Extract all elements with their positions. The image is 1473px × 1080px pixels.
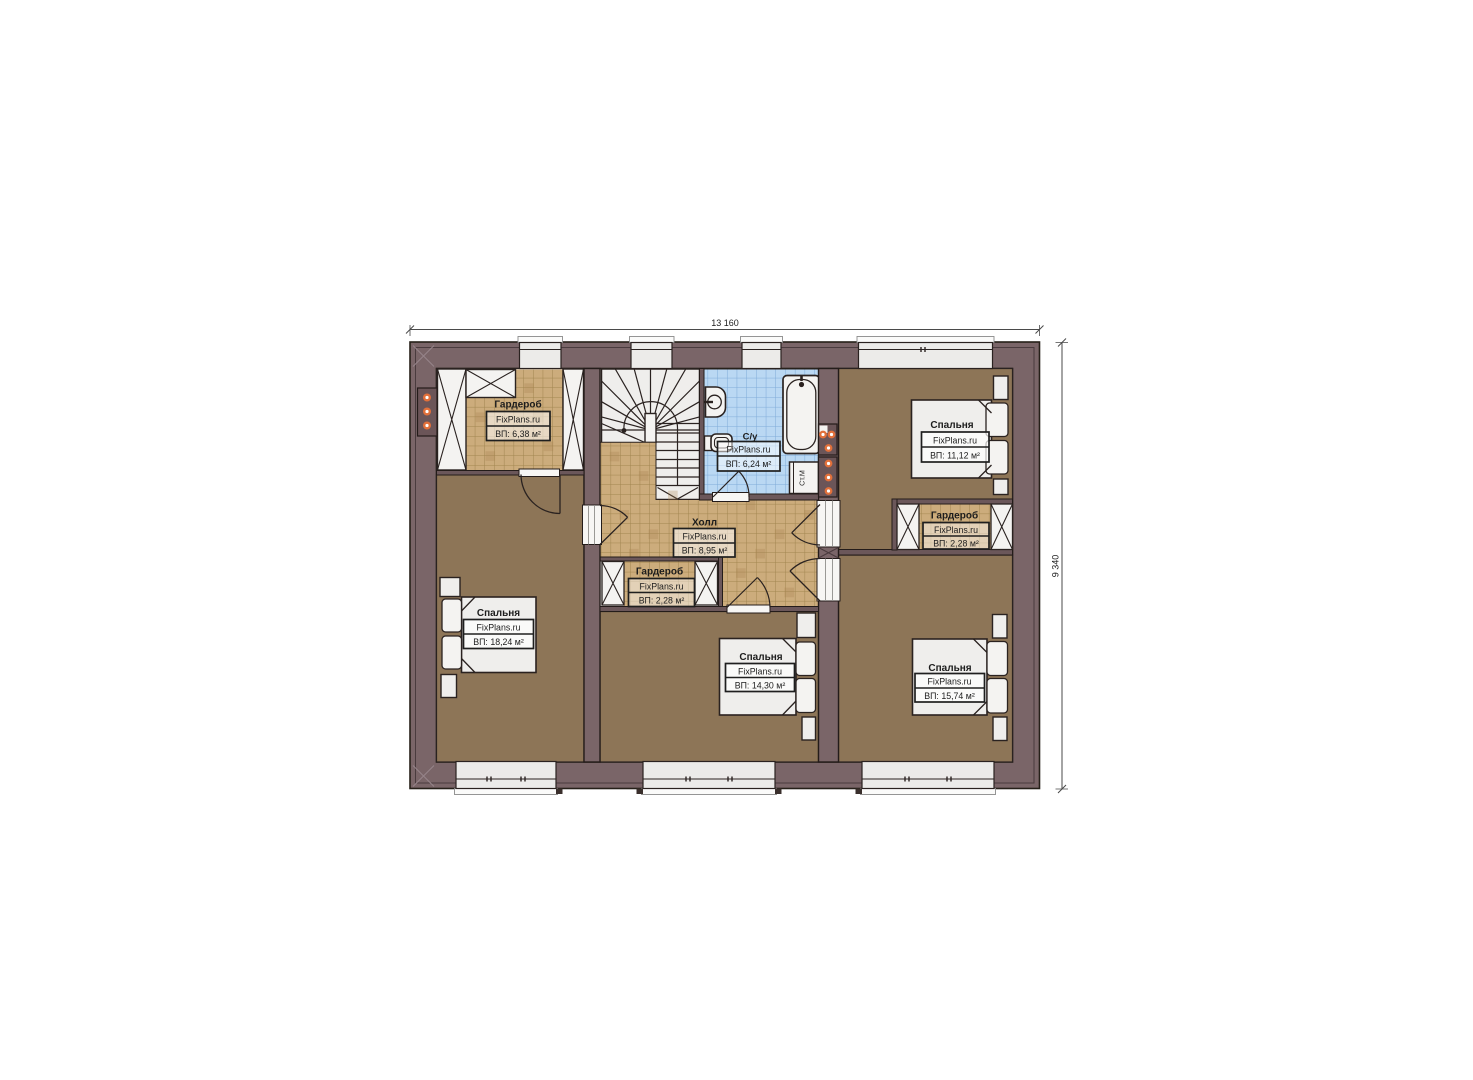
svg-text:9 340: 9 340 [1051,555,1061,578]
svg-text:Спальня: Спальня [930,420,973,431]
svg-text:Спальня: Спальня [928,663,971,674]
svg-text:Ст.М: Ст.М [798,470,807,486]
svg-text:FixPlans.ru: FixPlans.ru [738,667,782,677]
svg-text:Спальня: Спальня [739,652,782,663]
svg-text:FixPlans.ru: FixPlans.ru [640,582,684,592]
svg-text:ВП: 15,74 м²: ВП: 15,74 м² [924,691,975,701]
svg-text:FixPlans.ru: FixPlans.ru [477,623,521,633]
svg-text:FixPlans.ru: FixPlans.ru [683,532,727,542]
svg-text:ВП: 14,30 м²: ВП: 14,30 м² [735,681,786,691]
svg-text:Гардероб: Гардероб [636,566,683,578]
svg-text:ВП: 2,28 м²: ВП: 2,28 м² [933,539,979,549]
svg-text:ВП: 6,38 м²: ВП: 6,38 м² [495,429,541,439]
svg-text:ВП: 8,95 м²: ВП: 8,95 м² [682,546,728,556]
svg-text:13 160: 13 160 [711,318,739,328]
svg-text:ВП: 18,24 м²: ВП: 18,24 м² [473,637,524,647]
svg-text:Спальня: Спальня [477,608,520,619]
svg-text:FixPlans.ru: FixPlans.ru [727,445,771,455]
svg-text:ВП: 2,28 м²: ВП: 2,28 м² [639,596,685,606]
svg-text:FixPlans.ru: FixPlans.ru [933,436,977,446]
svg-text:ВП: 11,12 м²: ВП: 11,12 м² [930,451,980,461]
svg-text:FixPlans.ru: FixPlans.ru [934,525,978,535]
svg-text:FixPlans.ru: FixPlans.ru [928,677,972,687]
svg-text:Гардероб: Гардероб [494,399,541,411]
svg-text:FixPlans.ru: FixPlans.ru [496,415,540,425]
svg-text:Гардероб: Гардероб [931,510,978,522]
svg-text:Холл: Холл [692,518,717,529]
svg-text:ВП: 6,24 м²: ВП: 6,24 м² [726,459,772,469]
